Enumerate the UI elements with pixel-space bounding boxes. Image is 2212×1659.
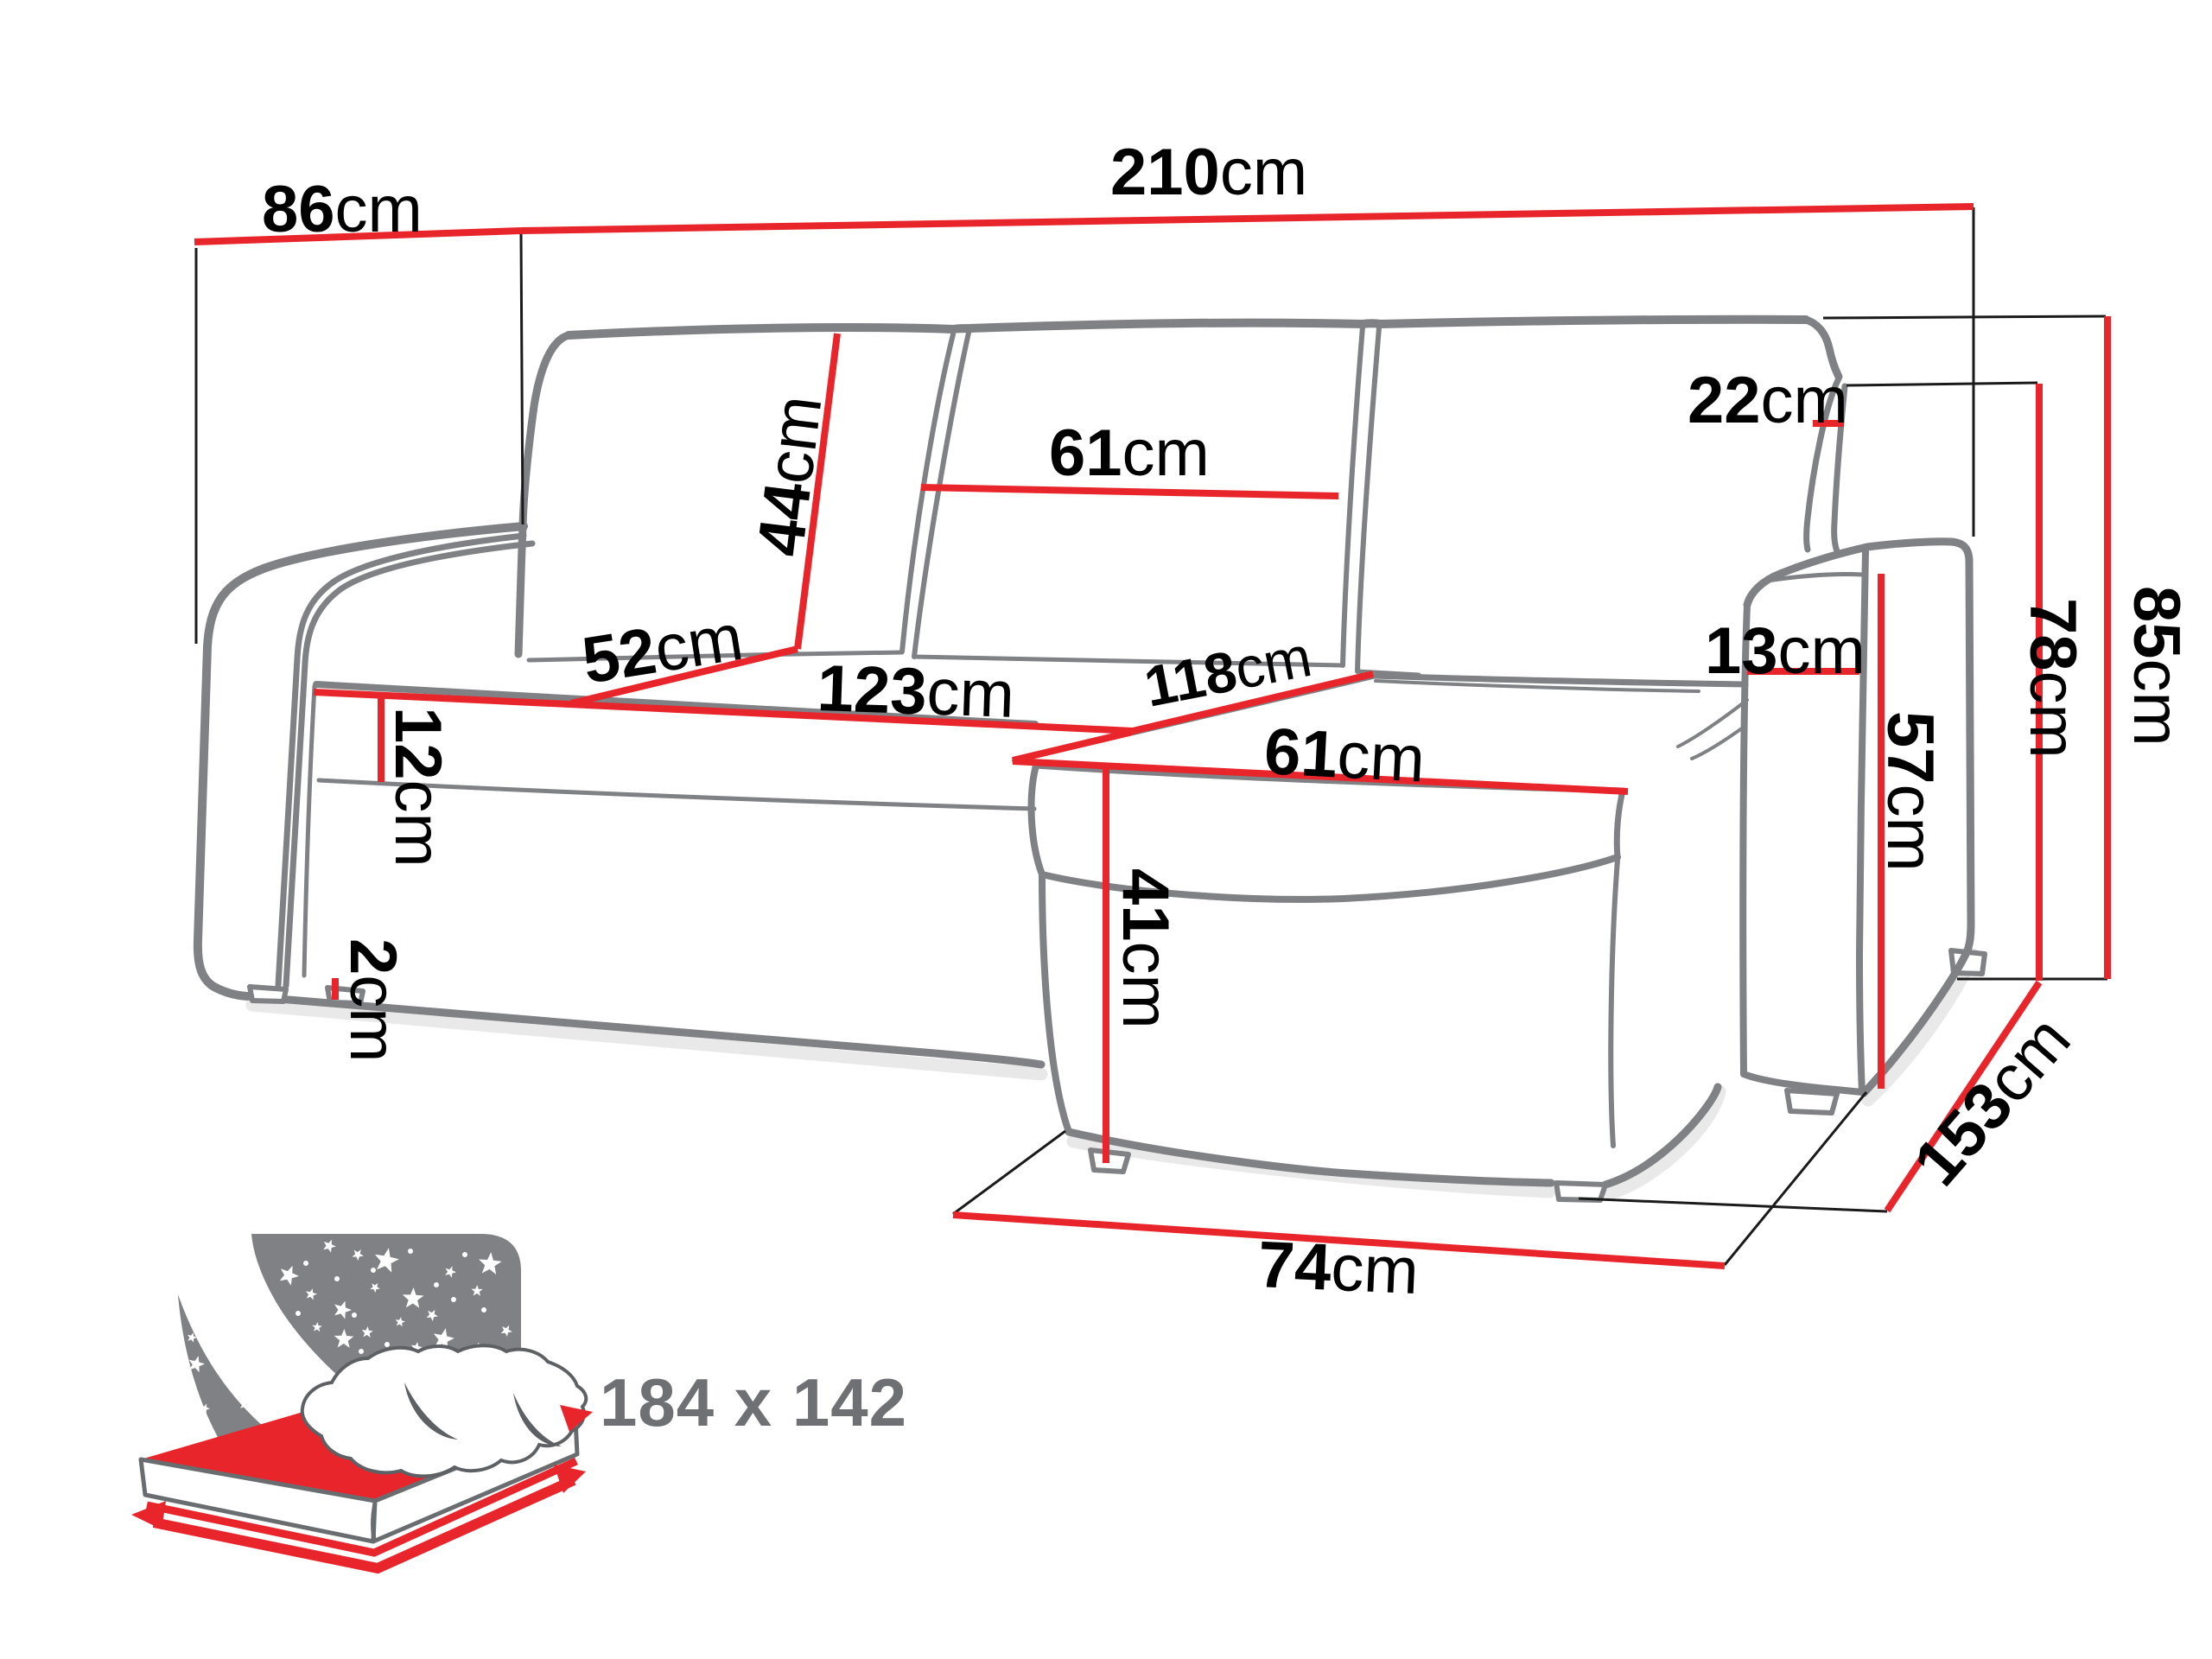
svg-text:61cm: 61cm	[1049, 416, 1210, 490]
svg-text:12cm: 12cm	[381, 707, 454, 868]
svg-text:61cm: 61cm	[1262, 715, 1427, 797]
svg-text:22cm: 22cm	[1688, 364, 1848, 437]
svg-text:210cm: 210cm	[1110, 136, 1307, 209]
svg-text:184 x 142: 184 x 142	[600, 1364, 907, 1440]
svg-text:41cm: 41cm	[1109, 868, 1182, 1029]
svg-text:85cm: 85cm	[2120, 586, 2193, 747]
svg-text:2cm: 2cm	[336, 938, 410, 1063]
svg-text:86cm: 86cm	[262, 173, 423, 246]
svg-text:57cm: 57cm	[1873, 711, 1947, 872]
svg-text:78cm: 78cm	[2016, 598, 2089, 759]
svg-text:13cm: 13cm	[1705, 614, 1866, 688]
svg-text:74cm: 74cm	[1256, 1228, 1420, 1308]
svg-text:123cm: 123cm	[816, 652, 1015, 732]
